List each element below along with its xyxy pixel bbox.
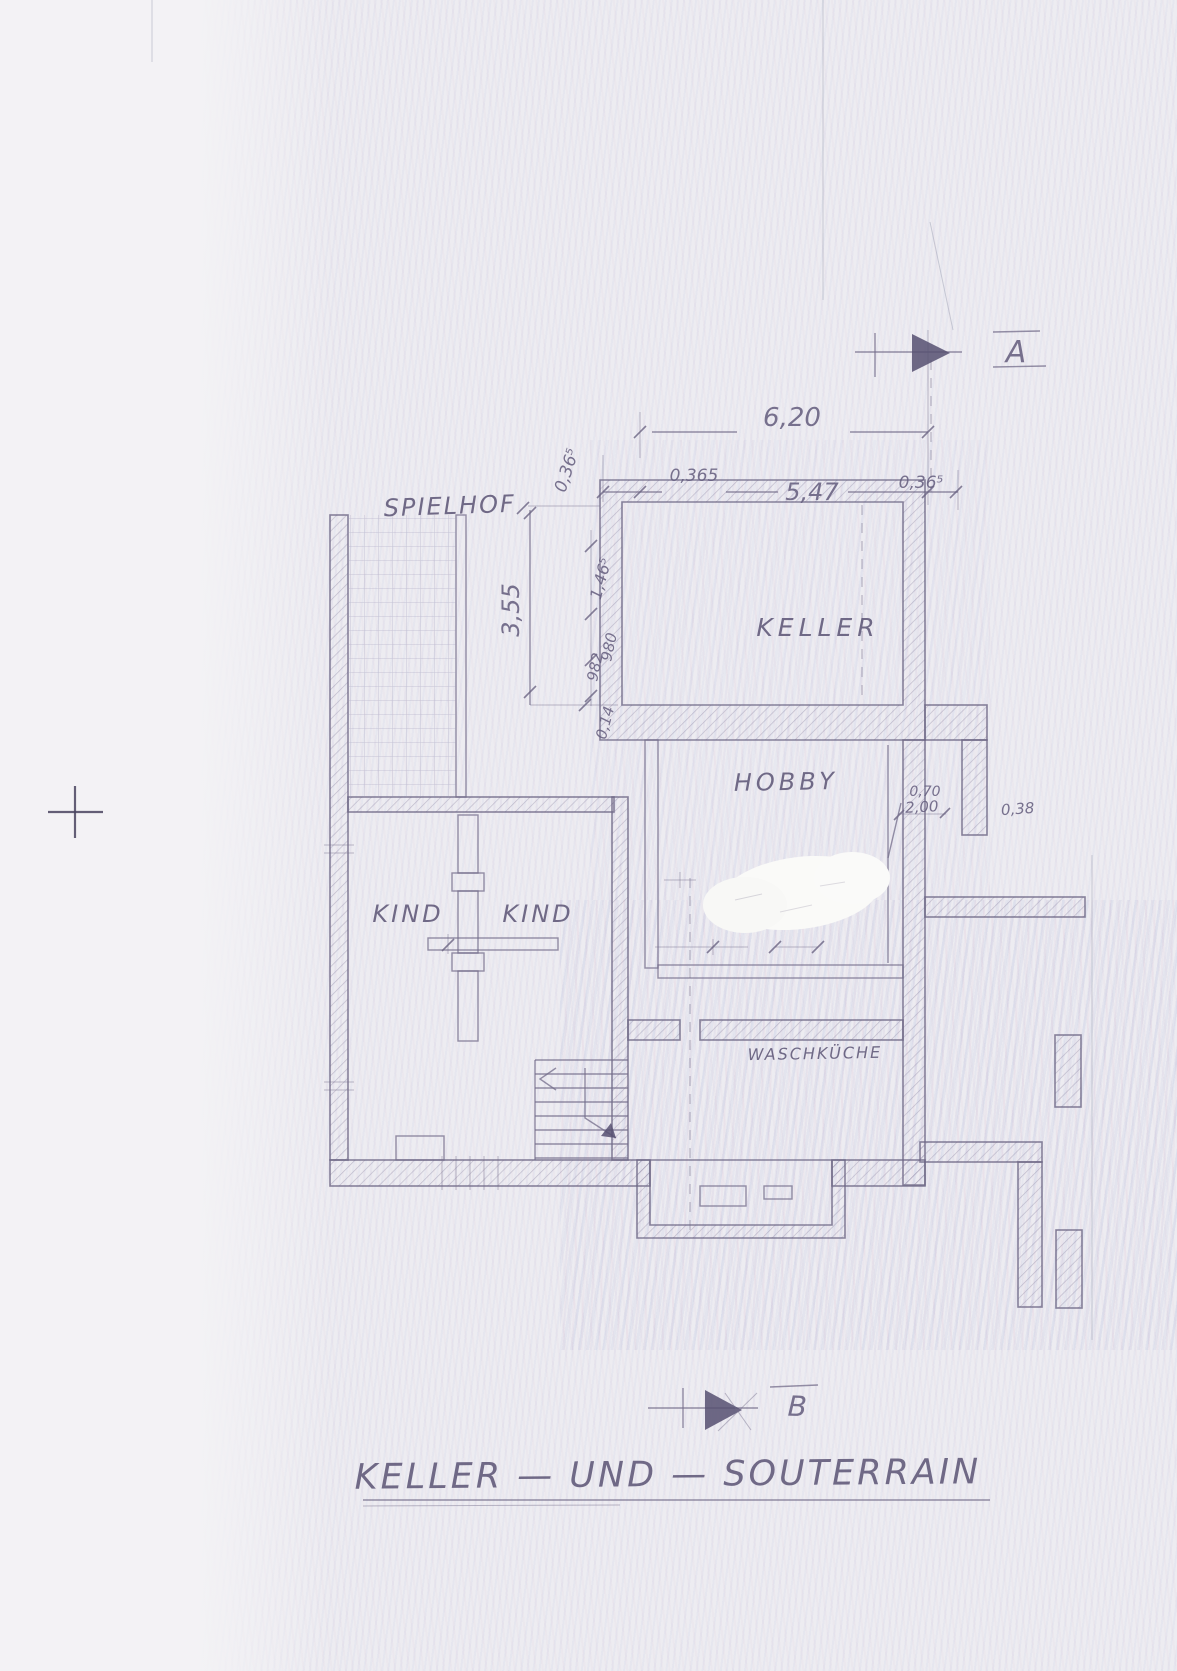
dim-side-wall: 0,36⁵ [551, 446, 584, 495]
section-marker-a: A [855, 331, 1046, 377]
hobby-door-swing [888, 803, 901, 858]
bottom-wall-left [330, 1160, 650, 1186]
room-label-kind-right: KIND [502, 900, 573, 928]
bay-step-2 [764, 1186, 792, 1199]
left-outer-wall [330, 515, 348, 1160]
dim-niche-depth: 2,00 [905, 797, 939, 817]
dim-top-right-offset: 0,36⁵ [899, 473, 944, 493]
dim-top-left-offset: 0,365 [670, 466, 719, 486]
kind-partition-door-2 [452, 953, 484, 971]
spielhof-grid-hatch [348, 515, 456, 797]
dim-top-inner: 5,47 [785, 478, 839, 506]
annex-wall-4 [1018, 1162, 1042, 1307]
drawing-title-group: KELLER — UND — SOUTERRAIN [354, 1452, 990, 1506]
whiteout-smudge [703, 848, 890, 939]
room-label-spielhof: SPIELHOF [383, 490, 516, 523]
annex-wall-3 [920, 1142, 1042, 1162]
hobby-bottom-wall [658, 965, 903, 978]
dim-right-gap: 0,38 [1000, 799, 1035, 819]
dimension-labels: 6,20 0,365 5,47 0,36⁵ 0,36⁵ 3,55 1,46⁵ 9… [497, 403, 1035, 819]
keller-bottom-wall-extension [925, 705, 987, 740]
title-underline-2 [363, 1505, 620, 1506]
spielhof-bottom-wall [348, 797, 614, 812]
annex-wall-1 [925, 897, 1085, 917]
hobby-left-wall [645, 740, 658, 968]
keller-outer-walls [600, 480, 925, 740]
dim-spielhof-height: 3,55 [497, 583, 525, 636]
stair-chevron-icon [540, 1068, 556, 1090]
room-label-waschkueche: WASCHKÜCHE [747, 1043, 882, 1064]
section-label-a: A [1004, 335, 1027, 370]
room-label-kind-left: KIND [372, 900, 443, 928]
bottom-door-recess [396, 1136, 444, 1160]
kind-partition-door-1 [452, 873, 484, 891]
room-label-keller: KELLER [756, 613, 879, 642]
bottom-wall-right [832, 1160, 925, 1186]
entrance-bay-walls [637, 1160, 845, 1238]
dim-top-total: 6,20 [763, 403, 821, 433]
bay-step-1 [700, 1186, 746, 1206]
room-label-hobby: HOBBY [734, 767, 839, 797]
kind-partition-3 [458, 971, 478, 1041]
scanned-floorplan-page: A B SPIELHOF KELLER HOBBY KIND K [0, 0, 1177, 1671]
annex-wall-2 [1055, 1035, 1081, 1107]
kind-partition-1 [458, 815, 478, 873]
kind-partition-2 [458, 891, 478, 953]
section-marker-b: B [648, 1385, 818, 1431]
floorplan-drawing: A B SPIELHOF KELLER HOBBY KIND K [0, 0, 1177, 1671]
annex-wall-5 [1056, 1230, 1082, 1308]
hall-divider-wall [612, 797, 628, 1160]
section-label-b: B [787, 1390, 807, 1424]
waschkueche-top-wall-b [700, 1020, 903, 1040]
spielhof-right-edge [456, 515, 466, 797]
waschkueche-top-wall-a [628, 1020, 680, 1040]
exterior-stair-wall [962, 740, 987, 835]
drawing-title: KELLER — UND — SOUTERRAIN [354, 1452, 981, 1497]
registration-cross [48, 786, 103, 838]
